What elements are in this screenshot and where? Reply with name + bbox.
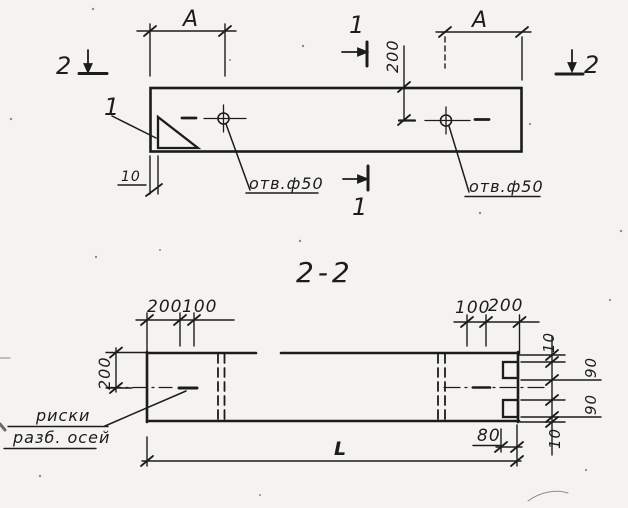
dim-length (141, 425, 523, 466)
dim-top-right (454, 315, 539, 352)
dim-chain-90-upper-label: 90 (584, 357, 599, 378)
dim-end-wall-label: 10 (121, 170, 141, 184)
hole-note-right-label: отв.ф50 (469, 179, 544, 195)
section-view-title: 2-2 (296, 259, 354, 287)
dim-top-left (136, 313, 234, 352)
dashed-joint-lines (218, 354, 445, 420)
dim-chain-10-bottom-label: 10 (548, 428, 563, 449)
dim-length-label: L (334, 440, 347, 459)
dim-height-label: 200 (97, 356, 113, 390)
dim-200-top-right-label: 200 (488, 298, 523, 315)
axis-centerlines (107, 388, 545, 389)
section1-mark-bottom-label: 1 (352, 195, 368, 219)
dim-chain-10-top-label: 10 (542, 332, 557, 353)
section-cut-marks (79, 42, 583, 190)
section-beam-outline (147, 352, 519, 422)
drawing-sheet: A A 200 1 1 2 2 1 10 отв.ф50 отв.ф50 2-2… (0, 0, 628, 508)
section2-mark-right-label: 2 (584, 53, 600, 77)
plan-beam-outline (151, 88, 522, 152)
dim-hole-offset-label: 200 (385, 39, 401, 73)
section2-mark-left-label: 2 (56, 54, 72, 78)
plan-corner-detail-triangle (158, 117, 198, 148)
axes-note-line2: разб. осей (13, 430, 110, 446)
dim-100-top-right-label: 100 (455, 300, 490, 317)
section1-mark-top-label: 1 (349, 13, 365, 37)
end-notch-lower (503, 400, 518, 417)
end-notch-upper (503, 362, 518, 378)
dim-chain-90-lower-label: 90 (584, 394, 599, 415)
axes-note-line1: риски (36, 408, 90, 424)
detail-mark-label: 1 (104, 95, 120, 119)
dim-200-top-left-label: 200 (147, 299, 182, 316)
hole-note-left-label: отв.ф50 (249, 176, 324, 192)
dim-a-right-label: A (472, 10, 488, 32)
dim-100-top-left-label: 100 (182, 299, 217, 316)
dim-a-left-label: A (183, 9, 199, 31)
dim-a-right (436, 27, 531, 80)
plan-view (79, 24, 583, 197)
dim-notch-label: 80 (477, 428, 501, 445)
